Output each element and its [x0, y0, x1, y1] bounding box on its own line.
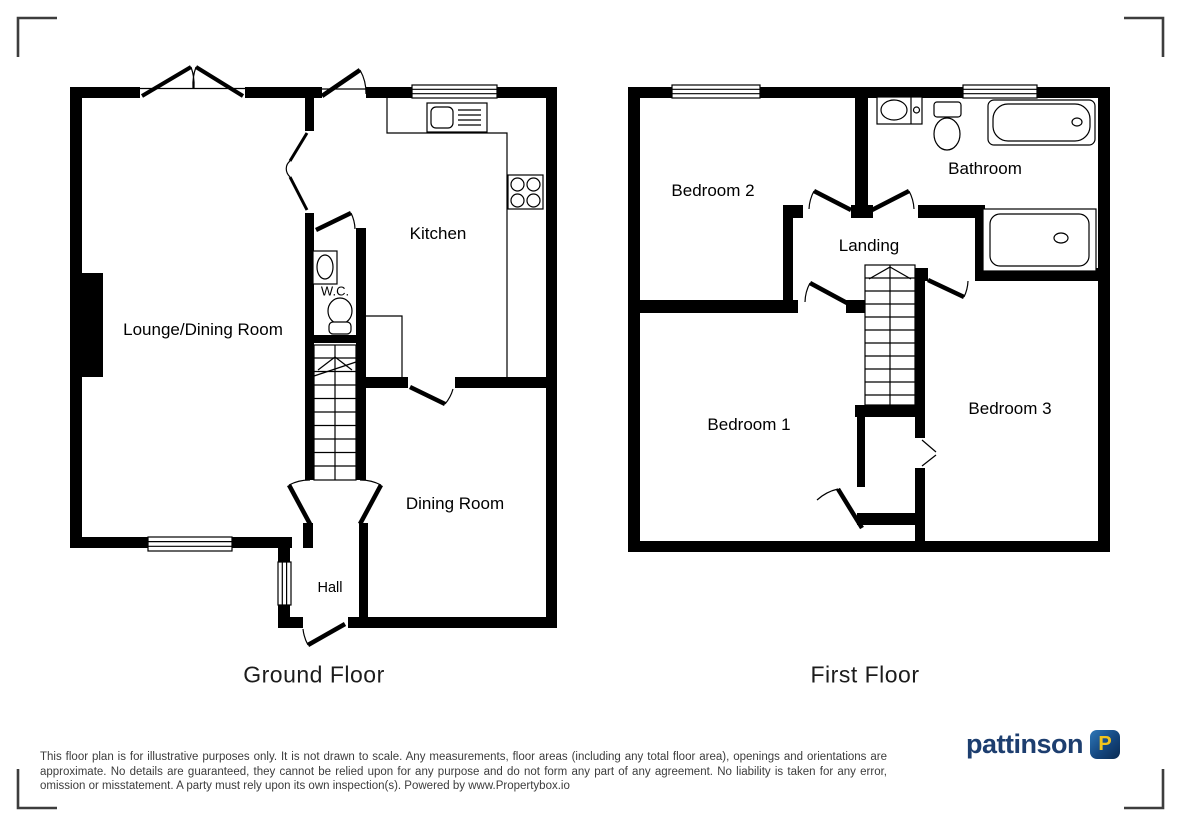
ground-floor-title: Ground Floor: [243, 662, 385, 689]
ground-floor-plan: [70, 67, 557, 645]
room-label-bedroom3: Bedroom 3: [968, 399, 1051, 419]
door-swing-icon: [928, 280, 968, 297]
wc-basin-icon: [313, 251, 337, 284]
casement-window-icon: [140, 67, 245, 96]
room-label-wc: W.C.: [321, 284, 349, 299]
room-label-bedroom1: Bedroom 1: [707, 415, 790, 435]
bath-icon: [988, 100, 1095, 145]
door-swing-icon: [805, 283, 847, 303]
window-icon: [412, 85, 497, 98]
first-floor-title: First Floor: [811, 662, 920, 689]
corner-crop-mark: [1124, 769, 1163, 808]
chimney-breast: [82, 273, 103, 377]
room-label-kitchen: Kitchen: [410, 224, 467, 244]
room-label-lounge: Lounge/Dining Room: [123, 320, 283, 340]
room-label-landing: Landing: [839, 236, 900, 256]
pattinson-logo-letter: P: [1098, 734, 1111, 754]
room-label-dining: Dining Room: [406, 494, 504, 514]
room-label-hall: Hall: [318, 580, 343, 596]
corner-crop-mark: [1124, 18, 1163, 57]
window-icon: [672, 85, 760, 98]
room-label-bedroom2: Bedroom 2: [671, 181, 754, 201]
door-swing-icon: [872, 191, 914, 210]
kitchen-sink-icon: [427, 103, 487, 132]
window-icon: [148, 537, 232, 551]
pattinson-logo: pattinson P: [966, 726, 1120, 762]
door-swing-icon: [922, 440, 936, 466]
bathroom-toilet-icon: [934, 102, 961, 150]
corner-crop-mark: [18, 18, 57, 57]
door-swing-icon: [289, 480, 310, 524]
wc-toilet-icon: [328, 298, 352, 334]
door-swing-icon: [286, 133, 307, 210]
window-icon: [278, 562, 291, 605]
stairs-icon: [314, 345, 356, 480]
room-label-bathroom: Bathroom: [948, 159, 1022, 179]
door-swing-icon: [303, 624, 345, 645]
door-swing-icon: [322, 70, 366, 96]
window-icon: [963, 85, 1037, 98]
first-floor-plan: [628, 85, 1110, 552]
shower-icon: [983, 209, 1096, 271]
pattinson-logo-badge: P: [1090, 730, 1120, 759]
stairs-icon: [865, 265, 915, 405]
door-swing-icon: [809, 191, 851, 210]
bathroom-basin-icon: [877, 97, 922, 124]
disclaimer-text: This floor plan is for illustrative purp…: [40, 750, 887, 794]
floorplan-page: Lounge/Dining Room Kitchen W.C. Dining R…: [0, 0, 1181, 826]
door-swing-icon: [817, 489, 862, 528]
door-swing-icon: [316, 213, 355, 230]
pattinson-logo-wordmark: pattinson: [966, 729, 1083, 760]
hob-icon: [508, 175, 543, 209]
door-swing-icon: [360, 480, 381, 524]
door-swing-icon: [410, 387, 453, 404]
